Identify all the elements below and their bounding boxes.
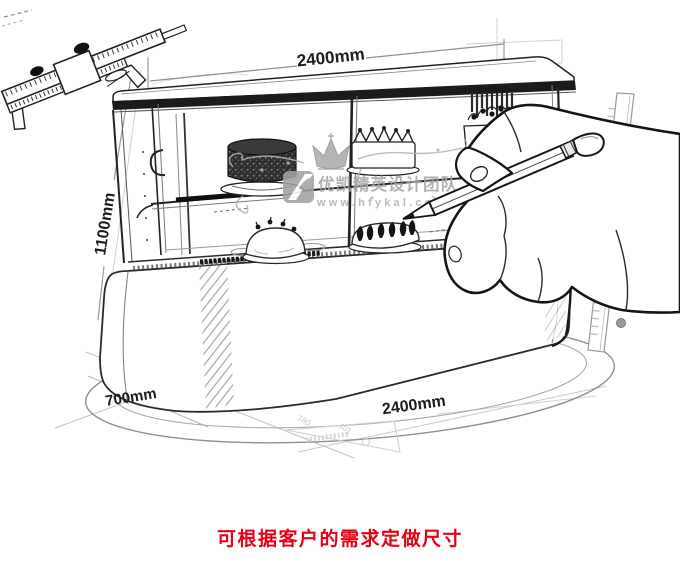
ruler-knob xyxy=(617,319,626,328)
set-square-sketch: 180 401 xyxy=(286,413,400,452)
hand xyxy=(445,105,680,313)
watermark-brand-text: 优凯精英设计团队 xyxy=(318,174,458,194)
pencil-lead xyxy=(403,213,415,219)
cake-cream xyxy=(347,126,419,176)
caption-text: 可根据客户的需求定做尺寸 xyxy=(0,524,680,551)
dimension-bottom-width: 2400mm xyxy=(381,393,447,419)
sketch-page: 2400mm 1100mm 180 401 70 xyxy=(0,0,680,578)
cake-petits xyxy=(349,220,421,253)
dimension-label-height: 1100mm xyxy=(92,191,119,256)
sketch-canvas: 2400mm 1100mm 180 401 70 xyxy=(0,0,680,520)
brand-logo-icon xyxy=(283,171,314,203)
vernier-caliper xyxy=(0,5,199,135)
faint-mark-180: 180 xyxy=(296,413,313,428)
screw-dots xyxy=(142,151,148,241)
corner-sketch-dashes xyxy=(2,10,32,26)
dimension-label-top-width: 2400mm xyxy=(296,45,366,71)
crown-icon xyxy=(313,133,349,169)
side-handle xyxy=(151,150,165,175)
dimension-label-bottom-width: 2400mm xyxy=(381,393,447,419)
